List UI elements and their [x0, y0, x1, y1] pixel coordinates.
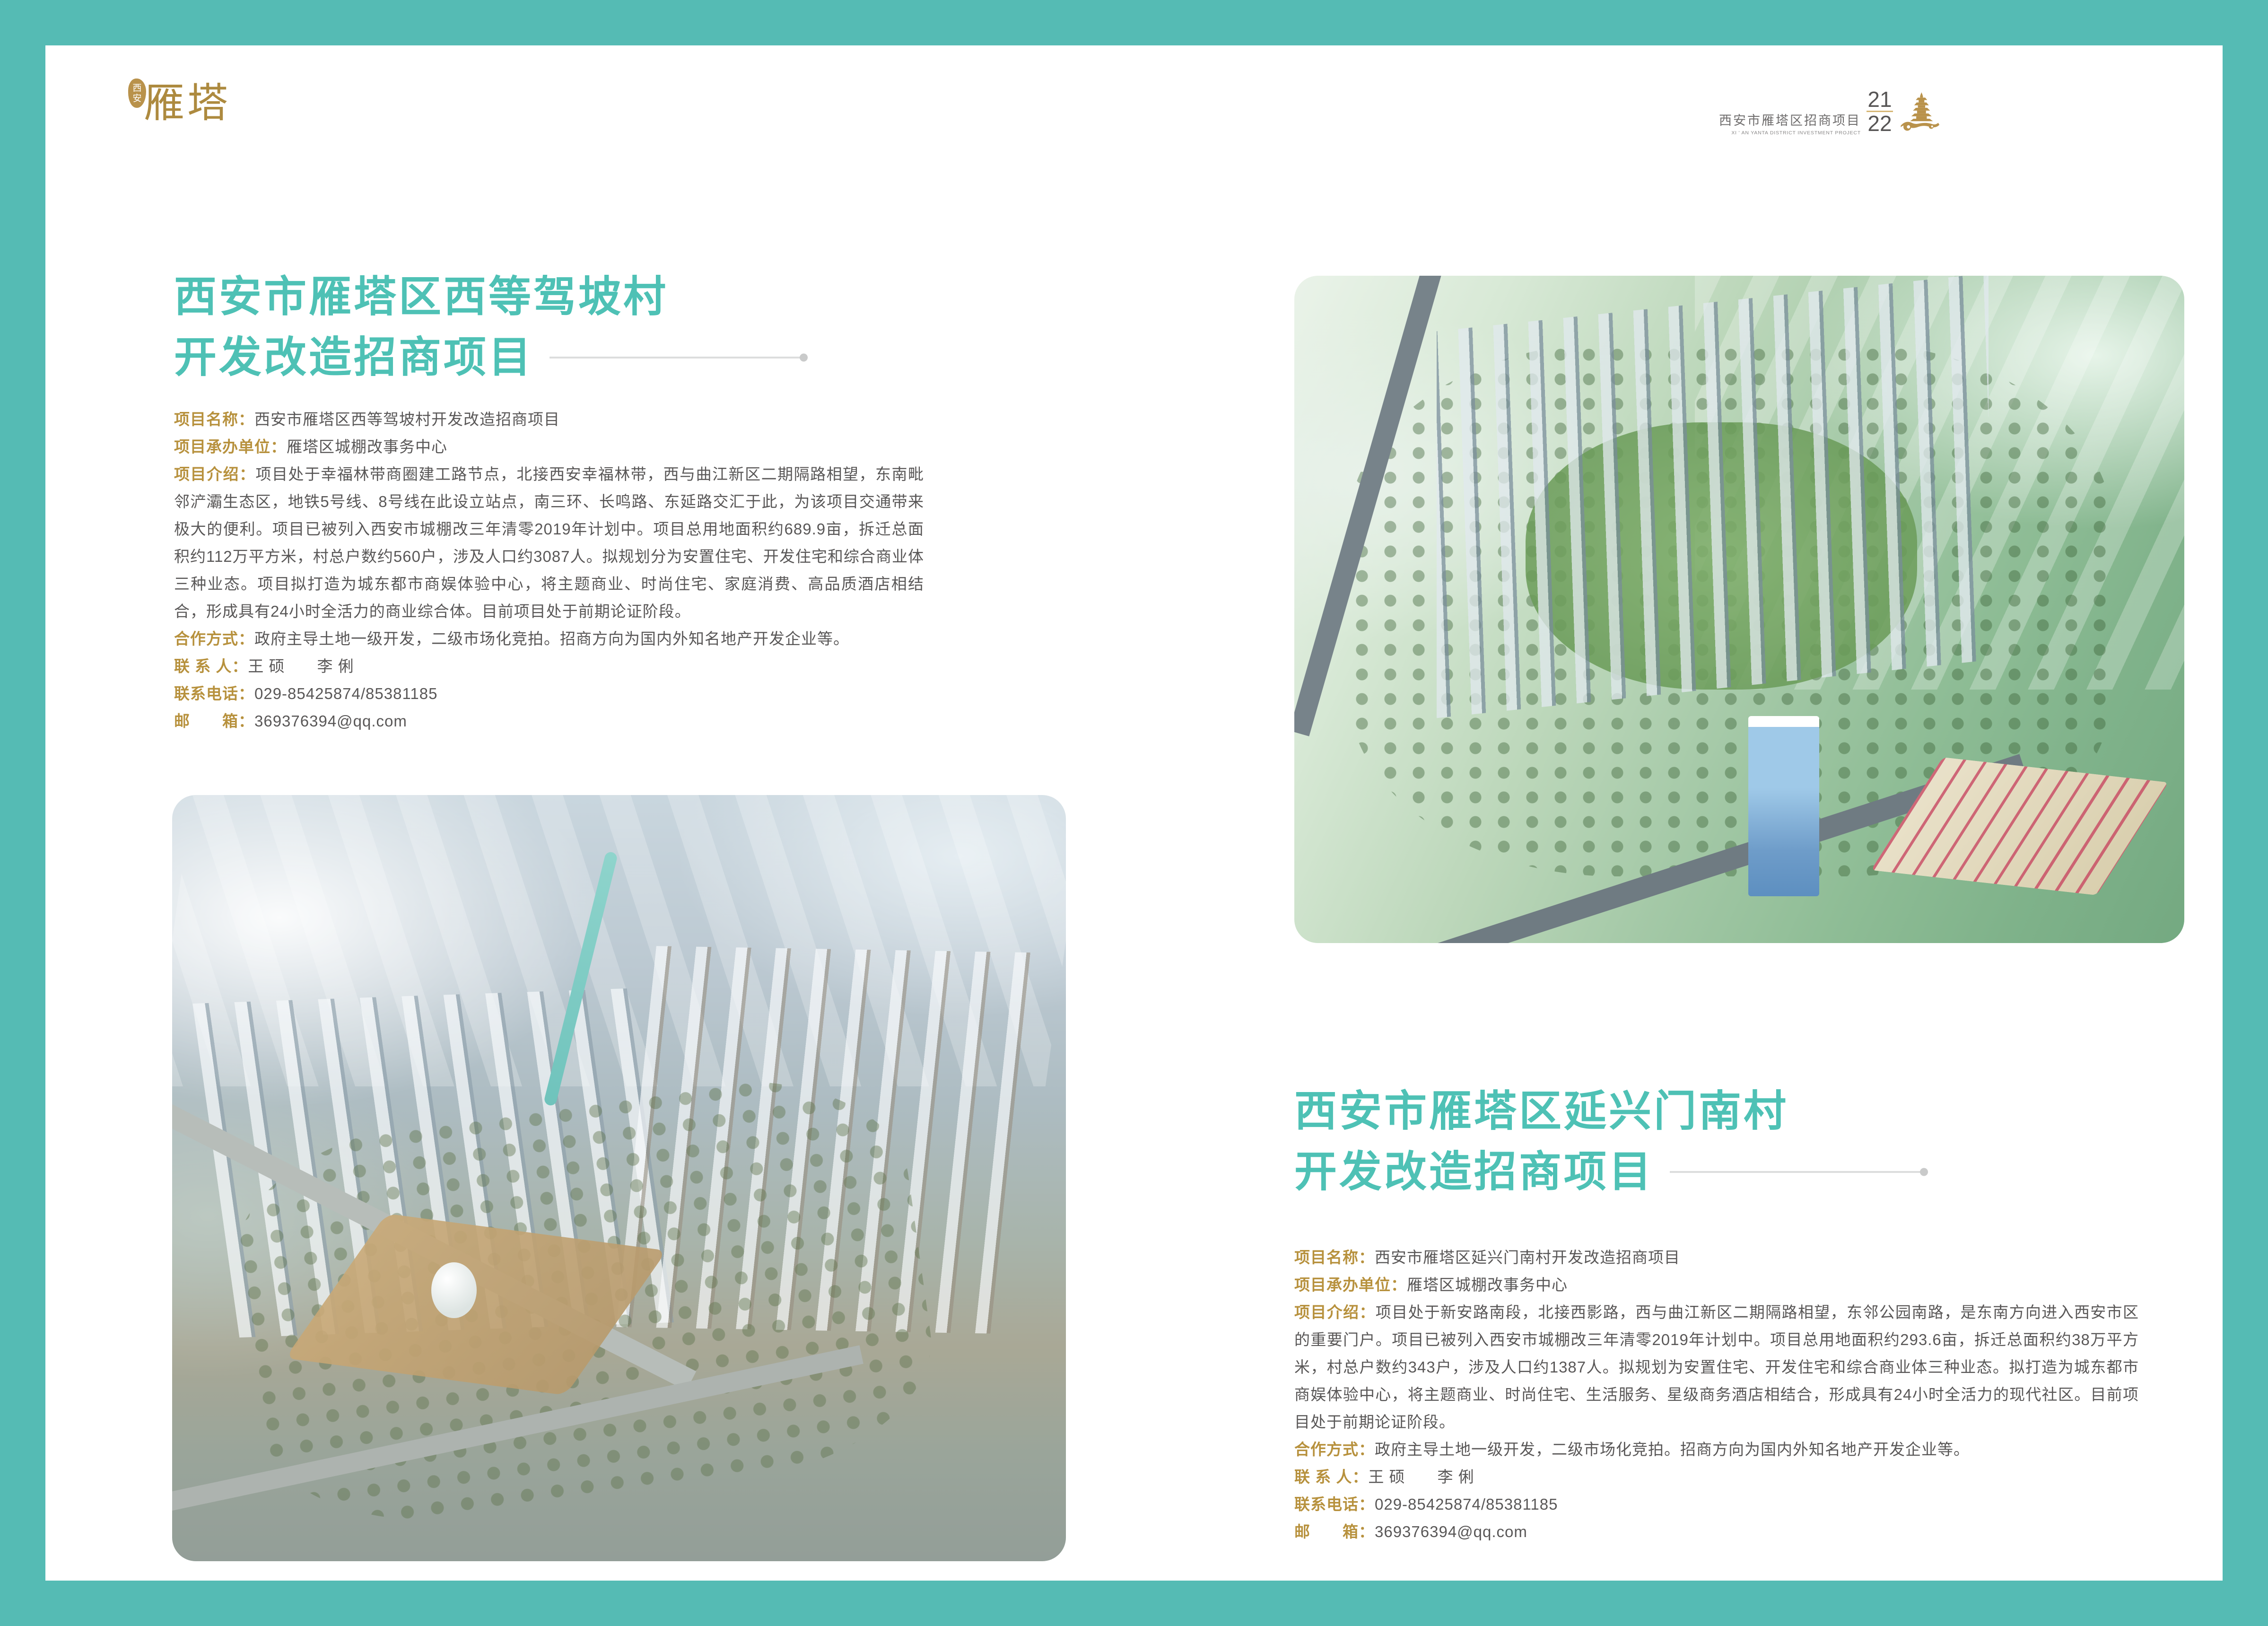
left-title-line1: 西安市雁塔区西等驾坡村 — [174, 267, 805, 327]
pagoda-cloud-icon — [1899, 92, 1940, 131]
page-numbers: 21 22 — [1866, 89, 1893, 134]
right-title-line1: 西安市雁塔区延兴门南村 — [1294, 1081, 1925, 1142]
page-canvas: 西 安 雁塔 西安市雁塔区招商项目 XI ' AN YANTA DISTRICT… — [45, 45, 2223, 1581]
logo-wordmark: 雁塔 — [144, 79, 231, 127]
render-glass-tower — [1748, 716, 1820, 896]
left-project-info: 项目名称：西安市雁塔区西等驾坡村开发改造招商项目 项目承办单位：雁塔区城棚改事务… — [174, 406, 924, 735]
right-project-title: 西安市雁塔区延兴门南村 开发改造招商项目 — [1294, 1081, 1925, 1202]
right-title-line2: 开发改造招商项目 — [1294, 1142, 1654, 1202]
seal-char-bottom: 安 — [132, 93, 141, 104]
field-cooperation: 合作方式：政府主导土地一级开发，二级市场化竞拍。招商方向为国内外知名地产开发企业… — [174, 625, 924, 653]
yanta-logo: 西 安 雁塔 — [127, 75, 325, 179]
header-text: 西安市雁塔区招商项目 XI ' AN YANTA DISTRICT INVEST… — [1719, 114, 1861, 136]
field-contact-phone: 联系电话：029-85425874/85381185 — [174, 680, 924, 708]
brochure-page: 西 安 雁塔 西安市雁塔区招商项目 XI ' AN YANTA DISTRICT… — [0, 0, 2268, 1626]
field-project-intro: 项目介绍：项目处于新安路南段，北接西影路，西与曲江新区二期隔路相望，东邻公园南路… — [1294, 1299, 2139, 1436]
header-title-en: XI ' AN YANTA DISTRICT INVESTMENT PROJEC… — [1719, 130, 1861, 136]
render-tower-cluster — [1437, 276, 1989, 718]
field-project-unit: 项目承办单位：雁塔区城棚改事务中心 — [174, 433, 924, 461]
page-number-current: 21 — [1866, 89, 1893, 110]
page-number-total: 22 — [1866, 113, 1893, 134]
left-title-line2: 开发改造招商项目 — [174, 327, 533, 388]
seal-char-top: 西 — [132, 83, 141, 93]
left-project-title: 西安市雁塔区西等驾坡村 开发改造招商项目 — [174, 267, 805, 388]
field-project-intro: 项目介绍：项目处于幸福林带商圈建工路节点，北接西安幸福林带，西与曲江新区二期隔路… — [174, 461, 924, 625]
render-dome-building — [431, 1262, 477, 1318]
title-divider-line — [550, 357, 805, 358]
title-divider-line — [1670, 1171, 1925, 1173]
field-contact-person: 联 系 人：王 硕 李 俐 — [1294, 1463, 2139, 1491]
field-project-unit: 项目承办单位：雁塔区城棚改事务中心 — [1294, 1271, 2139, 1299]
left-project-render-image — [172, 795, 1066, 1561]
page-header: 西安市雁塔区招商项目 XI ' AN YANTA DISTRICT INVEST… — [1666, 89, 2092, 179]
header-title-cn: 西安市雁塔区招商项目 — [1719, 114, 1861, 128]
field-contact-email: 邮 箱：369376394@qq.com — [174, 708, 924, 735]
field-contact-email: 邮 箱：369376394@qq.com — [1294, 1518, 2139, 1546]
right-project-info: 项目名称：西安市雁塔区延兴门南村开发改造招商项目 项目承办单位：雁塔区城棚改事务… — [1294, 1244, 2139, 1546]
field-contact-phone: 联系电话：029-85425874/85381185 — [1294, 1491, 2139, 1518]
right-project-render-image — [1294, 276, 2184, 943]
field-contact-person: 联 系 人：王 硕 李 俐 — [174, 653, 924, 680]
field-cooperation: 合作方式：政府主导土地一级开发，二级市场化竞拍。招商方向为国内外知名地产开发企业… — [1294, 1436, 2139, 1463]
field-project-name: 项目名称：西安市雁塔区西等驾坡村开发改造招商项目 — [174, 406, 924, 433]
field-project-name: 项目名称：西安市雁塔区延兴门南村开发改造招商项目 — [1294, 1244, 2139, 1271]
